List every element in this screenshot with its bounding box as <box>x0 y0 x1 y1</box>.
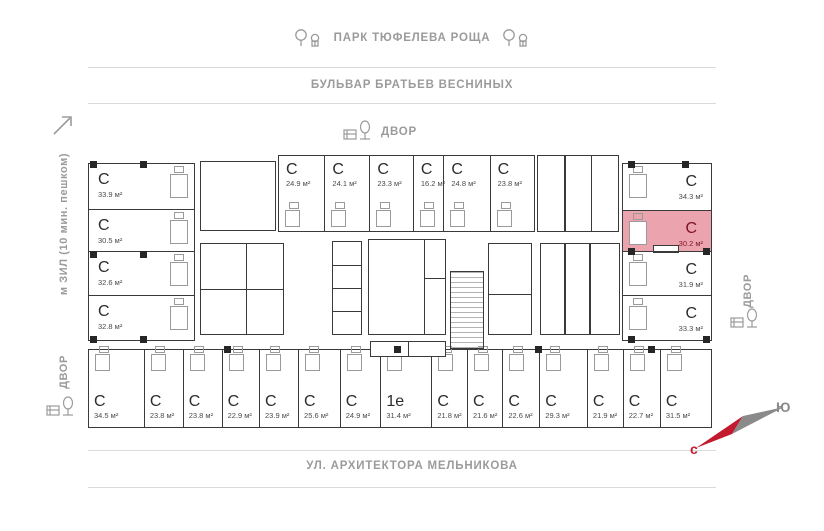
metro-label: м ЗИЛ (10 мин. пешком) <box>58 124 70 324</box>
park-label-row: ПАРК ТЮФЕЛЕВА РОЩА <box>0 28 824 48</box>
unit-area-label: 31.4 м² <box>386 411 410 420</box>
unit-type-label: С <box>98 260 110 276</box>
staircase <box>450 271 484 349</box>
unit-area-label: 24.8 м² <box>451 179 475 188</box>
column <box>90 336 97 343</box>
unit-21-8[interactable]: С21.8 м² <box>431 350 467 427</box>
trees-icon <box>292 28 326 48</box>
bathroom-fixtures <box>305 354 320 371</box>
boulevard-label: БУЛЬВАР БРАТЬЕВ ВЕСНИНЫХ <box>0 79 824 91</box>
unit-24-9[interactable]: С24.9 м² <box>279 156 324 231</box>
unit-31-4[interactable]: 1е31.4 м² <box>380 350 431 427</box>
unit-area-label: 21.6 м² <box>473 411 497 420</box>
unit-23-8[interactable]: С23.8 м² <box>183 350 222 427</box>
unit-22-6[interactable]: С22.6 м² <box>502 350 539 427</box>
bathroom-fixtures <box>170 174 188 198</box>
column <box>703 336 710 343</box>
bathroom-fixtures <box>450 210 465 227</box>
bathroom-fixtures <box>629 262 647 286</box>
column <box>703 248 710 255</box>
divider-line <box>88 103 716 104</box>
column <box>682 161 689 168</box>
unit-25-6[interactable]: С25.6 м² <box>298 350 340 427</box>
unit-32-8[interactable]: С32.8 м² <box>89 295 194 340</box>
unit-area-label: 16.2 м² <box>421 179 445 188</box>
service-rooms <box>540 243 620 335</box>
column <box>90 161 97 168</box>
bathroom-fixtures <box>546 354 561 371</box>
bathroom-fixtures <box>285 210 300 227</box>
unit-area-label: 24.1 м² <box>332 179 356 188</box>
common-room <box>200 161 276 231</box>
unit-area-label: 31.5 м² <box>666 411 690 420</box>
divider-line <box>88 67 716 68</box>
bathroom-fixtures <box>170 220 188 244</box>
unit-type-label: С <box>498 162 510 178</box>
unit-23-3[interactable]: С23.3 м² <box>369 156 412 231</box>
unit-area-label: 34.3 м² <box>679 192 703 201</box>
unit-type-label: С <box>98 172 110 188</box>
bathroom-fixtures <box>629 221 647 245</box>
unit-33-3[interactable]: С33.3 м² <box>623 295 711 340</box>
unit-type-label: С <box>685 306 697 322</box>
unit-area-label: 22.6 м² <box>508 411 532 420</box>
elevator-shafts <box>332 241 362 335</box>
column <box>140 336 147 343</box>
unit-type-label: С <box>346 394 358 410</box>
bathroom-fixtures <box>376 210 391 227</box>
unit-24-9[interactable]: С24.9 м² <box>340 350 381 427</box>
courtyard-icon <box>343 120 373 143</box>
service-rooms <box>488 243 532 335</box>
unit-type-label: С <box>421 162 433 178</box>
compass-needle-icon: Ю с <box>688 398 792 456</box>
unit-type-label: С <box>685 174 697 190</box>
column <box>140 251 147 258</box>
bathroom-fixtures <box>629 306 647 330</box>
elevator-lobby <box>368 239 446 335</box>
unit-type-label: С <box>286 162 298 178</box>
unit-34-3[interactable]: С34.3 м² <box>623 164 711 210</box>
unit-area-label: 23.3 м² <box>377 179 401 188</box>
unit-23-9[interactable]: С23.9 м² <box>259 350 298 427</box>
bathroom-fixtures <box>229 354 244 371</box>
right-column-units: С34.3 м²С30.2 м²С31.9 м²С33.3 м² <box>622 163 712 341</box>
unit-type-label: С <box>94 394 106 410</box>
unit-type-label: С <box>437 394 449 410</box>
unit-area-label: 23.8 м² <box>498 179 522 188</box>
unit-area-label: 21.8 м² <box>437 411 461 420</box>
unit-type-label: С <box>545 394 557 410</box>
floor-plan: С33.9 м²С30.5 м²С32.6 м²С32.8 м² С24.9 м… <box>88 155 712 428</box>
common-room <box>537 155 619 232</box>
unit-area-label: 30.5 м² <box>98 236 122 245</box>
bathroom-fixtures <box>151 354 166 371</box>
unit-area-label: 30.2 м² <box>679 239 703 248</box>
unit-type-label: С <box>228 394 240 410</box>
bathroom-fixtures <box>630 354 645 371</box>
unit-22-7[interactable]: С22.7 м² <box>623 350 660 427</box>
unit-type-label: С <box>98 304 110 320</box>
bathroom-fixtures <box>331 210 346 227</box>
column <box>628 248 635 255</box>
street-bottom-label: УЛ. АРХИТЕКТОРА МЕЛЬНИКОВА <box>0 460 824 472</box>
service-rooms <box>200 243 284 335</box>
unit-21-6[interactable]: С21.6 м² <box>467 350 502 427</box>
unit-area-label: 33.9 м² <box>98 190 122 199</box>
unit-area-label: 24.9 м² <box>286 179 310 188</box>
bathroom-fixtures <box>474 354 489 371</box>
unit-24-1[interactable]: С24.1 м² <box>324 156 369 231</box>
column <box>628 161 635 168</box>
unit-area-label: 22.9 м² <box>228 411 252 420</box>
unit-area-label: 23.9 м² <box>265 411 289 420</box>
column <box>224 346 231 353</box>
bathroom-fixtures <box>420 210 435 227</box>
unit-type-label: С <box>508 394 520 410</box>
compass-north-label: с <box>690 441 698 456</box>
unit-23-8[interactable]: С23.8 м² <box>490 156 534 231</box>
unit-30-2[interactable]: С30.2 м² <box>623 210 711 251</box>
column <box>140 161 147 168</box>
unit-area-label: 23.8 м² <box>189 411 213 420</box>
unit-33-9[interactable]: С33.9 м² <box>89 164 194 209</box>
bathroom-fixtures <box>95 354 110 371</box>
unit-34-5[interactable]: С34.5 м² <box>89 350 144 427</box>
trees-icon <box>498 28 532 48</box>
unit-area-label: 25.6 м² <box>304 411 328 420</box>
unit-23-8[interactable]: С23.8 м² <box>144 350 183 427</box>
unit-type-label: С <box>473 394 485 410</box>
unit-type-label: С <box>451 162 463 178</box>
unit-area-label: 33.3 м² <box>679 324 703 333</box>
bathroom-fixtures <box>667 354 682 371</box>
unit-type-label: С <box>304 394 316 410</box>
unit-type-label: С <box>98 218 110 234</box>
bathroom-fixtures <box>594 354 609 371</box>
park-label: ПАРК ТЮФЕЛЕВА РОЩА <box>334 32 491 44</box>
bathroom-fixtures <box>170 262 188 286</box>
unit-type-label: С <box>629 394 641 410</box>
column <box>648 346 655 353</box>
column <box>90 251 97 258</box>
unit-22-9[interactable]: С22.9 м² <box>222 350 259 427</box>
unit-area-label: 29.3 м² <box>545 411 569 420</box>
unit-type-label: 1е <box>386 394 404 410</box>
unit-31-9[interactable]: С31.9 м² <box>623 251 711 295</box>
unit-21-9[interactable]: С21.9 м² <box>587 350 623 427</box>
yard-top-label: ДВОР <box>381 126 417 138</box>
courtyard-icon <box>46 396 76 419</box>
column <box>394 346 401 353</box>
floor-plan-page: ПАРК ТЮФЕЛЕВА РОЩА БУЛЬВАР БРАТЬЕВ ВЕСНИ… <box>0 0 824 531</box>
unit-type-label: С <box>593 394 605 410</box>
divider-line <box>88 450 716 451</box>
unit-area-label: 24.9 м² <box>346 411 370 420</box>
bathroom-fixtures <box>509 354 524 371</box>
compass-south-label: Ю <box>776 399 790 415</box>
yard-top-row: ДВОР <box>280 120 480 143</box>
unit-type-label: С <box>189 394 201 410</box>
bathroom-fixtures <box>170 306 188 330</box>
unit-type-label: С <box>685 221 697 237</box>
unit-area-label: 34.5 м² <box>94 411 118 420</box>
lobby <box>370 341 446 357</box>
unit-30-5[interactable]: С30.5 м² <box>89 209 194 251</box>
top-row-units: С24.9 м²С24.1 м²С23.3 м²С16.2 м²С24.8 м²… <box>278 155 535 232</box>
bathroom-fixtures <box>266 354 281 371</box>
column <box>628 336 635 343</box>
unit-type-label: С <box>150 394 162 410</box>
unit-area-label: 23.8 м² <box>150 411 174 420</box>
bathroom-fixtures <box>629 174 647 198</box>
unit-type-label: С <box>265 394 277 410</box>
unit-area-label: 32.8 м² <box>98 322 122 331</box>
unit-area-label: 22.7 м² <box>629 411 653 420</box>
bathroom-fixtures <box>497 210 512 227</box>
bathroom-fixtures <box>347 354 362 371</box>
unit-24-8[interactable]: С24.8 м² <box>443 156 489 231</box>
unit-type-label: С <box>332 162 344 178</box>
unit-type-label: С <box>666 394 678 410</box>
bottom-row-units: С34.5 м²С23.8 м²С23.8 м²С22.9 м²С23.9 м²… <box>88 349 712 428</box>
divider-line <box>88 487 716 488</box>
unit-area-label: 32.6 м² <box>98 278 122 287</box>
unit-type-label: С <box>685 262 697 278</box>
unit-16-2[interactable]: С16.2 м² <box>413 156 444 231</box>
unit-area-label: 31.9 м² <box>679 280 703 289</box>
unit-type-label: С <box>377 162 389 178</box>
courtyard-icon <box>730 308 760 331</box>
column <box>535 346 542 353</box>
unit-area-label: 21.9 м² <box>593 411 617 420</box>
bathroom-fixtures <box>190 354 205 371</box>
unit-29-3[interactable]: С29.3 м² <box>539 350 587 427</box>
